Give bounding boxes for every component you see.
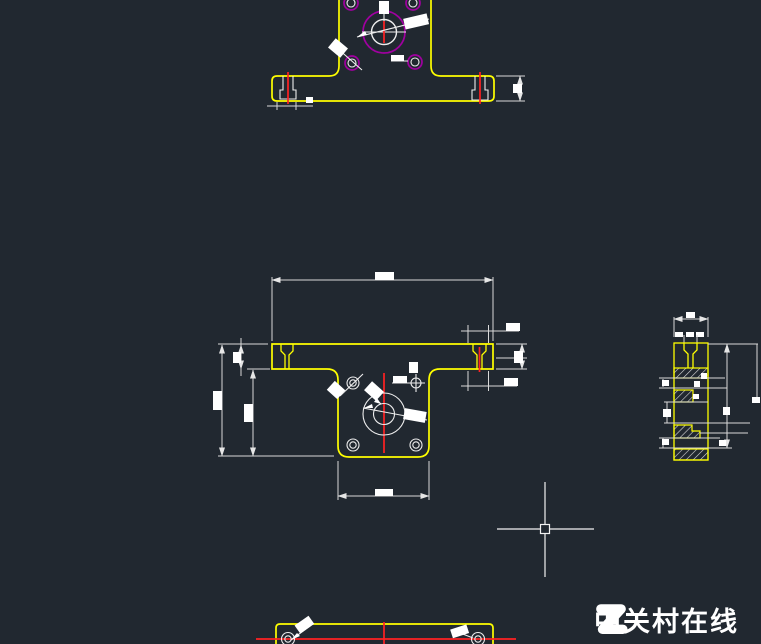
- technical-drawing: [0, 0, 761, 644]
- side-section-view[interactable]: [659, 312, 760, 460]
- side-view-top-dimension[interactable]: [674, 312, 708, 343]
- front-view-center-bore[interactable]: [363, 381, 427, 435]
- front-view-left-dimensions[interactable]: [213, 338, 334, 456]
- pickbox: [541, 525, 550, 534]
- front-view[interactable]: [213, 272, 527, 500]
- top-view-outline[interactable]: [272, 0, 494, 101]
- bottom-view-leaders[interactable]: [291, 616, 473, 640]
- top-view[interactable]: [267, 0, 525, 110]
- front-view-left-slot[interactable]: [281, 344, 293, 369]
- side-view-top-slot[interactable]: [684, 343, 697, 368]
- front-view-right-slot-dimensions[interactable]: [461, 323, 527, 391]
- zol-logo-icon: [594, 603, 628, 637]
- front-view-bottom-dimension[interactable]: [338, 461, 429, 500]
- side-view-hatching[interactable]: [674, 368, 708, 460]
- front-view-small-hole[interactable]: [327, 374, 363, 399]
- front-view-position-target[interactable]: [392, 362, 425, 392]
- top-view-right-dimension[interactable]: [496, 76, 525, 101]
- watermark: 中关村在线: [594, 603, 739, 641]
- bottom-view[interactable]: [256, 616, 516, 644]
- side-view-right-dimensions[interactable]: [719, 344, 760, 448]
- front-view-outline[interactable]: [272, 344, 493, 457]
- front-view-top-dimension[interactable]: [272, 272, 493, 341]
- cad-model-space[interactable]: 中关村在线: [0, 0, 761, 644]
- front-view-right-slot[interactable]: [473, 344, 486, 372]
- crosshair-cursor: [497, 482, 594, 577]
